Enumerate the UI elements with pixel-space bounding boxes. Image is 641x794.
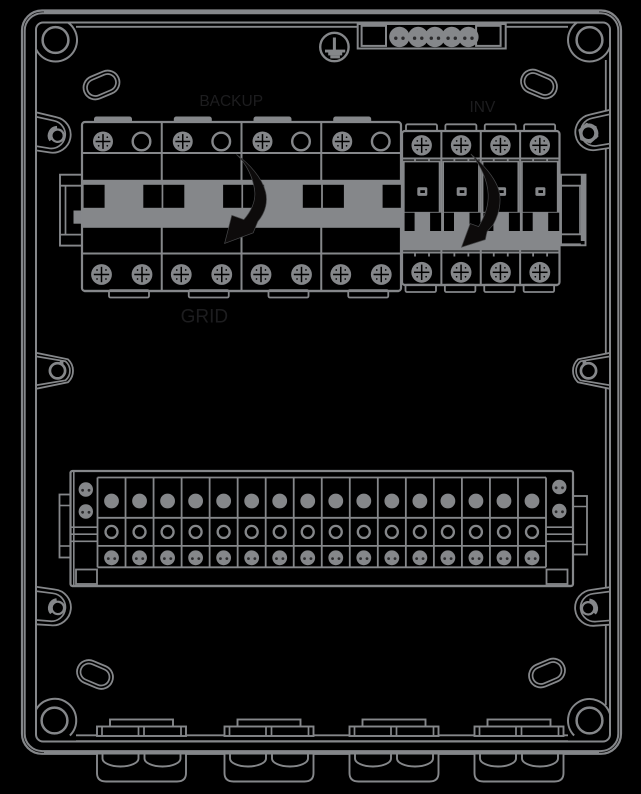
svg-text:BACKUP: BACKUP [199,93,263,110]
svg-text:GRID: GRID [181,307,229,328]
svg-text:INV: INV [469,99,496,116]
